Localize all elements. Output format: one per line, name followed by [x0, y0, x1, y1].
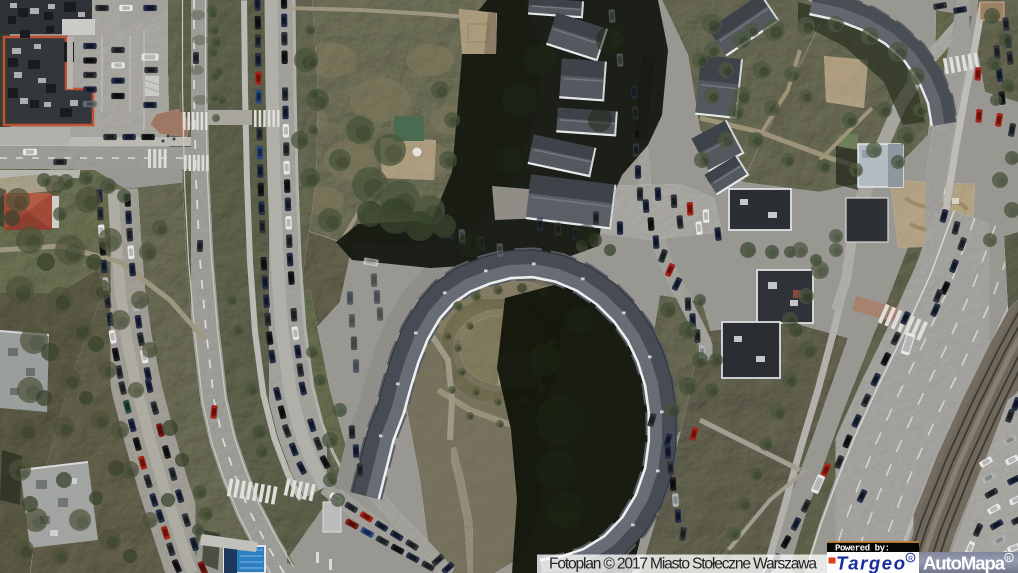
svg-text:R: R: [1006, 555, 1011, 562]
svg-text:Fotoplan © 2017 Miasto Stołecz: Fotoplan © 2017 Miasto Stołeczne Warszaw…: [549, 556, 817, 573]
svg-text:AutoMapa: AutoMapa: [923, 553, 1006, 573]
svg-text:Targeo: Targeo: [836, 553, 905, 573]
svg-text:R: R: [908, 555, 913, 562]
